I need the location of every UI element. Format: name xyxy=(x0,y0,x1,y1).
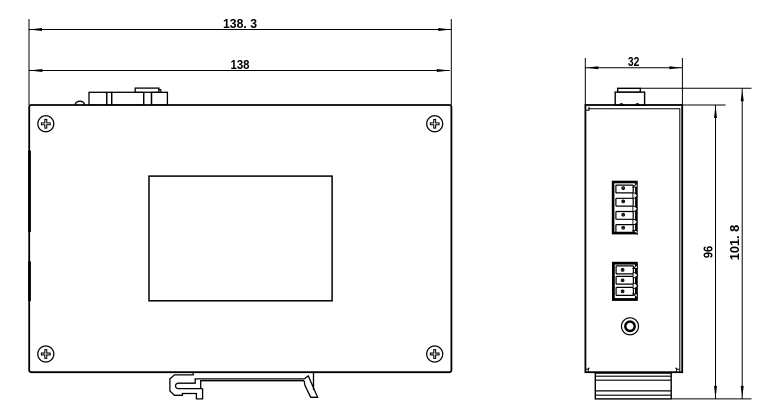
svg-text:101. 8: 101. 8 xyxy=(727,225,742,261)
svg-text:138. 3: 138. 3 xyxy=(223,16,257,31)
svg-text:32: 32 xyxy=(628,54,640,69)
svg-text:138: 138 xyxy=(231,57,250,72)
svg-text:96: 96 xyxy=(700,246,715,258)
